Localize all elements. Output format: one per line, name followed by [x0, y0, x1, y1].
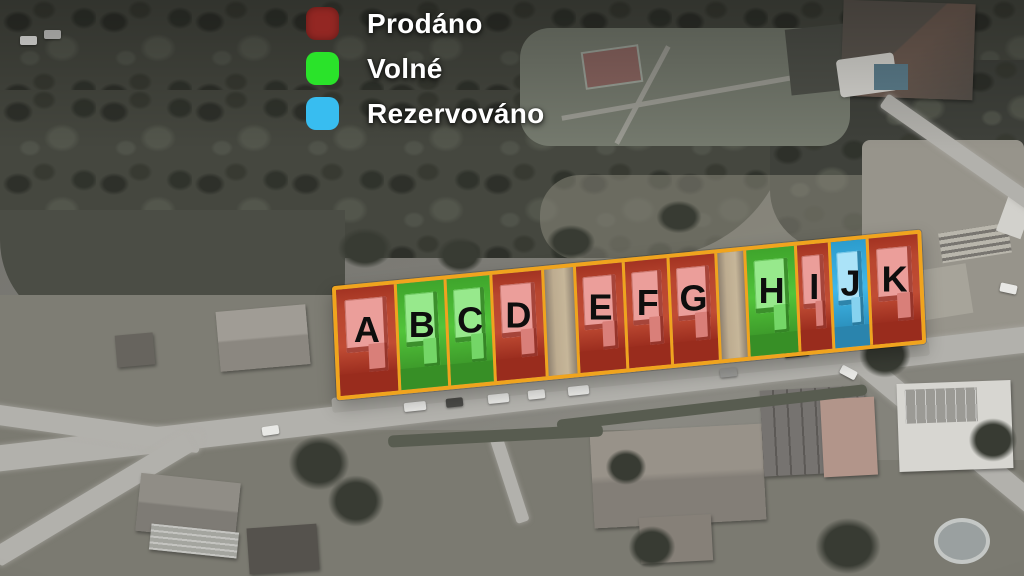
solar-panels: [905, 387, 978, 423]
front-yard: [401, 364, 448, 390]
lot-parcel-e[interactable]: E: [573, 262, 626, 373]
lot-parcel-i[interactable]: I: [793, 243, 832, 352]
front-yard: [750, 331, 798, 357]
front-yard: [496, 355, 545, 381]
tree: [962, 412, 1024, 468]
lot-label: K: [871, 262, 920, 298]
parked-car: [20, 36, 37, 45]
tree: [320, 468, 392, 534]
front-yard: [834, 324, 871, 349]
pool: [874, 64, 908, 90]
tennis-court: [581, 44, 644, 90]
legend-label: Volné: [367, 53, 443, 85]
lot-parcel-a[interactable]: A: [336, 284, 399, 396]
pool-round: [934, 518, 990, 564]
front-yard: [800, 328, 832, 352]
legend-item-available: Volné: [306, 52, 545, 85]
front-yard: [340, 369, 399, 396]
access-strip: [541, 267, 578, 376]
lot-parcel-h[interactable]: H: [743, 246, 798, 357]
lot-label: I: [798, 270, 829, 306]
legend-label: Rezervováno: [367, 98, 545, 130]
lot-label: C: [448, 303, 492, 339]
lot-label: E: [578, 290, 624, 326]
lot-parcel-g[interactable]: G: [667, 254, 719, 365]
lot-parcel-d[interactable]: D: [490, 270, 546, 381]
lot-parcel-c[interactable]: C: [443, 275, 494, 386]
legend-item-reserved: Rezervováno: [306, 97, 545, 130]
tree: [806, 510, 890, 576]
pink-house-roof: [820, 397, 878, 478]
parked-car: [720, 367, 738, 378]
lot-parcel-b[interactable]: B: [394, 280, 448, 391]
front-yard: [673, 338, 718, 363]
tree: [540, 220, 602, 264]
lot-label: H: [748, 274, 796, 310]
legend-item-sold: Prodáno: [306, 7, 545, 40]
access-strip: [714, 251, 748, 360]
front-yard: [580, 347, 626, 373]
lot-parcel-f[interactable]: F: [621, 258, 671, 368]
front-yard: [628, 343, 671, 368]
reserved-swatch-icon: [306, 97, 339, 130]
tree: [330, 222, 400, 274]
lot-label: G: [672, 281, 717, 317]
lot-label: D: [494, 298, 543, 334]
tree: [600, 444, 652, 490]
lot-label: J: [832, 266, 868, 302]
lot-label: F: [626, 286, 669, 322]
front-yard: [873, 319, 922, 345]
lot-parcel-j[interactable]: J: [827, 239, 870, 349]
aerial-site-plan: A B C D E F G: [0, 0, 1024, 576]
gazebo-roof: [115, 332, 156, 367]
legend: Prodáno Volné Rezervováno: [306, 7, 545, 130]
tree: [622, 520, 682, 574]
front-yard: [450, 360, 494, 385]
sold-swatch-icon: [306, 7, 339, 40]
legend-label: Prodáno: [367, 8, 483, 40]
dark-house-roof: [246, 524, 319, 575]
parked-car: [446, 397, 464, 408]
tree: [650, 196, 708, 238]
lot-label: B: [399, 307, 446, 343]
parked-car: [528, 389, 546, 400]
lot-parcel-k[interactable]: K: [866, 234, 922, 345]
parked-car: [44, 30, 61, 39]
lot-label: A: [338, 313, 396, 349]
house-roof: [216, 304, 311, 372]
available-swatch-icon: [306, 52, 339, 85]
